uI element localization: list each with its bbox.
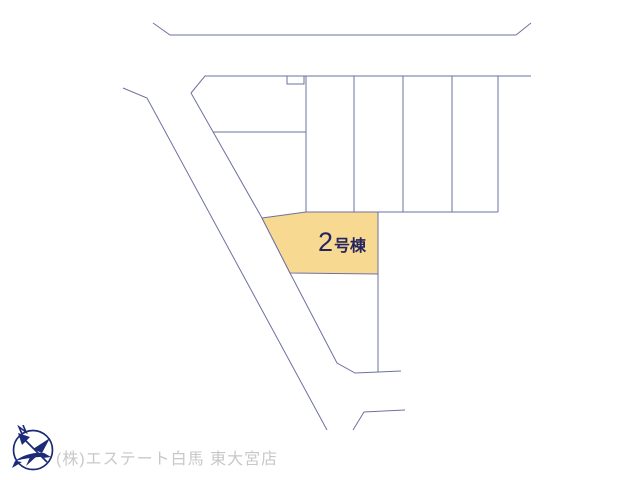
site-plan-map: 2号棟 (株)エステート白馬 東大宮店 [0, 0, 640, 480]
north-road-line [153, 23, 531, 35]
plot-map-drawing [0, 0, 640, 480]
east-road-south-edge [353, 410, 405, 430]
map-outline-group [123, 23, 531, 430]
highlighted-plot-2 [262, 212, 378, 274]
plots-top-boundary [191, 76, 531, 93]
utility-box [287, 76, 304, 84]
company-credit: (株)エステート白馬 東大宮店 [56, 450, 278, 469]
north-compass-icon [10, 425, 56, 473]
bird-silhouette [12, 438, 51, 468]
compass-group [12, 425, 53, 470]
